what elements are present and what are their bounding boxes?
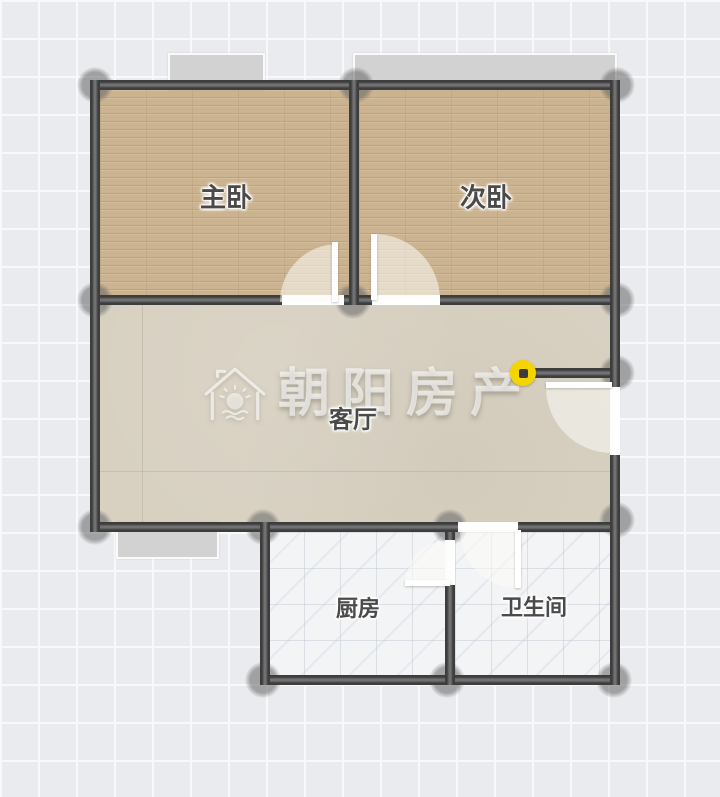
room-label-living-room: 客厅 (329, 400, 377, 435)
entry-point-marker (510, 360, 536, 386)
entry-point-marker-pin (519, 369, 528, 378)
wall-bedroom-bottom (90, 295, 282, 305)
door-leaf-bathroom (515, 530, 521, 588)
wall-bedroom-bottom (440, 295, 620, 305)
wall-bottom (260, 675, 620, 685)
wall-bedroom-divider (349, 80, 359, 305)
wall-living-bottom (90, 522, 458, 532)
wall-right-lower (610, 455, 620, 532)
wall-left (90, 80, 100, 532)
wall-kitchen-bath-divider (445, 532, 455, 540)
wall-bathroom-top (518, 522, 620, 532)
door-leaf-master-bedroom (332, 242, 338, 302)
room-label-bathroom: 卫生间 (501, 590, 567, 622)
room-label-second-bedroom: 次卧 (460, 178, 512, 215)
wall-kitchen-left (260, 522, 270, 685)
wall-kitchen-bath-divider (445, 585, 455, 685)
room-label-master-bedroom: 主卧 (200, 178, 252, 215)
door-leaf-second-bedroom (371, 234, 377, 300)
room-label-kitchen: 厨房 (336, 591, 380, 623)
wall-bathroom-right (610, 532, 620, 685)
wall-entry-stub (528, 368, 610, 378)
floorplan-canvas: 朝阳房产 主卧 次卧 客厅 厨房 卫生间 (0, 0, 720, 797)
door-leaf-entry (546, 382, 612, 388)
wall-right-upper (610, 80, 620, 387)
door-leaf-kitchen (405, 580, 450, 586)
